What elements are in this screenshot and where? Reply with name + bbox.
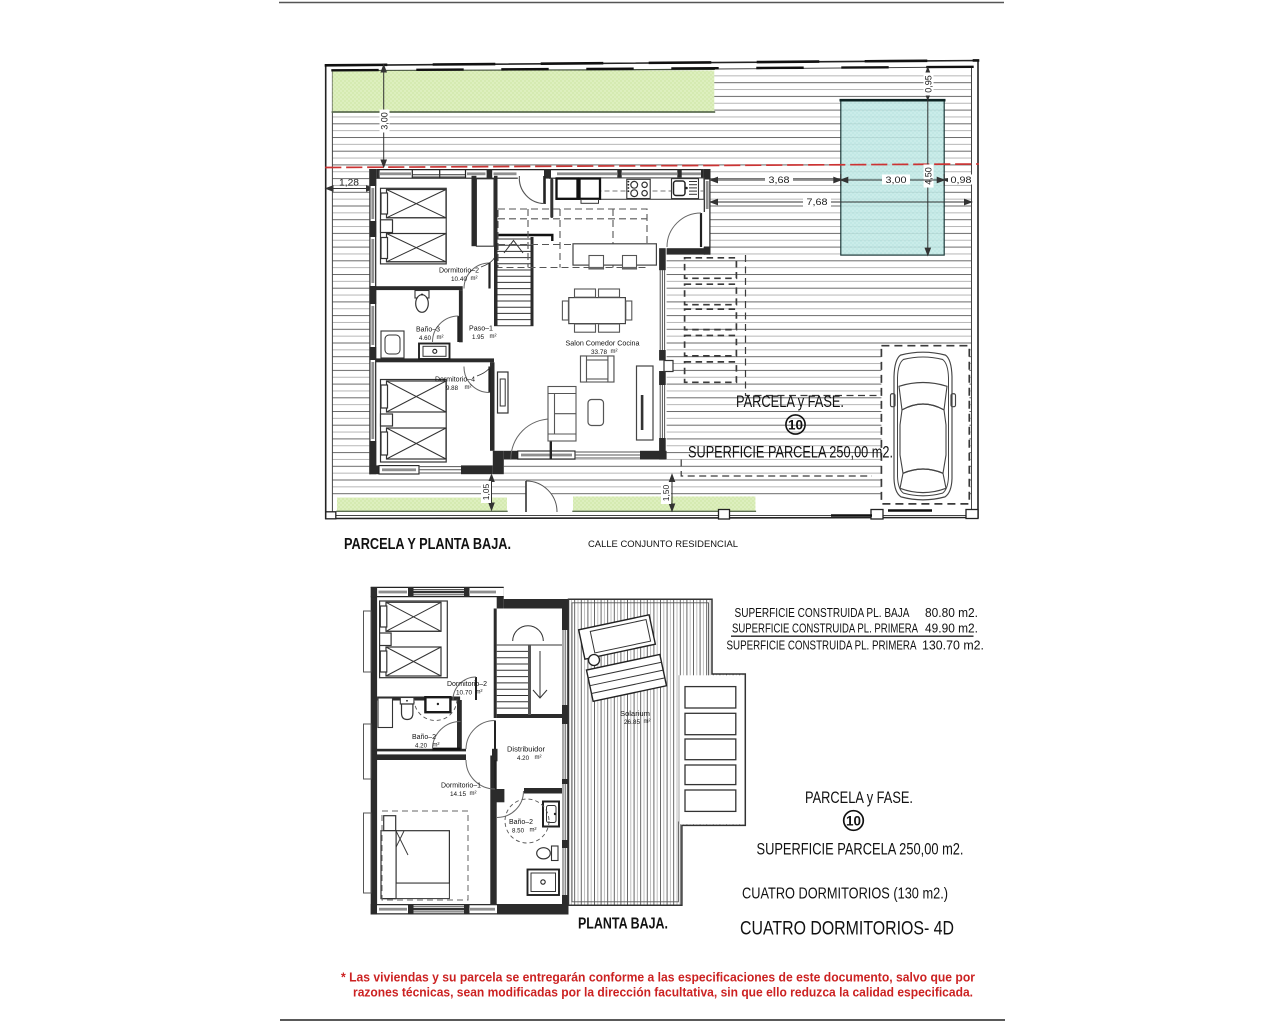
svg-text:Distribuidor: Distribuidor <box>507 747 546 754</box>
svg-text:3,00: 3,00 <box>380 112 390 130</box>
svg-text:m²: m² <box>433 743 440 749</box>
svg-text:9.88: 9.88 <box>446 386 459 392</box>
svg-text:m²: m² <box>490 334 497 340</box>
svg-text:8.50: 8.50 <box>512 829 525 835</box>
svg-text:10.40: 10.40 <box>451 277 468 283</box>
svg-text:PLANTA BAJA.: PLANTA BAJA. <box>578 916 668 933</box>
svg-text:4.20: 4.20 <box>517 756 530 762</box>
svg-text:14.15: 14.15 <box>450 792 467 798</box>
svg-text:10.70: 10.70 <box>456 691 473 697</box>
svg-text:SUPERFICIE CONSTRUIDA PL. PRIM: SUPERFICIE CONSTRUIDA PL. PRIMERA <box>727 639 918 653</box>
svg-text:26.85: 26.85 <box>624 720 641 726</box>
svg-text:49.90 m2.: 49.90 m2. <box>925 622 978 636</box>
svg-text:10: 10 <box>788 418 803 433</box>
svg-text:PARCELA y FASE.: PARCELA y FASE. <box>736 393 844 411</box>
svg-text:SUPERFICIE CONSTRUIDA PL. BAJA: SUPERFICIE CONSTRUIDA PL. BAJA <box>735 606 911 620</box>
svg-text:80.80 m2.: 80.80 m2. <box>925 606 978 620</box>
svg-text:m²: m² <box>476 690 483 696</box>
svg-text:1.95: 1.95 <box>472 335 485 341</box>
svg-text:Baño–3: Baño–3 <box>416 327 440 334</box>
svg-text:m²: m² <box>530 828 537 834</box>
svg-text:1,50: 1,50 <box>661 484 671 501</box>
svg-text:1,28: 1,28 <box>339 178 359 188</box>
svg-text:Salon Comedor Cocina: Salon Comedor Cocina <box>566 341 640 348</box>
svg-text:Baño–2: Baño–2 <box>509 819 533 826</box>
svg-text:m²: m² <box>470 791 477 797</box>
svg-text:m²: m² <box>611 349 618 355</box>
svg-text:Baño–2: Baño–2 <box>412 734 436 741</box>
svg-text:3,00: 3,00 <box>886 175 907 185</box>
svg-text:0,98: 0,98 <box>951 175 972 185</box>
svg-text:* Las viviendas y su parcela s: * Las viviendas y su parcela se entregar… <box>341 971 975 985</box>
svg-text:CUATRO DORMITORIOS (130 m2.): CUATRO DORMITORIOS (130 m2.) <box>742 886 948 903</box>
svg-text:Dormitorio–1: Dormitorio–1 <box>441 783 481 790</box>
svg-text:4,50: 4,50 <box>924 167 934 185</box>
svg-text:m²: m² <box>535 755 542 761</box>
svg-text:CALLE CONJUNTO RESIDENCIAL: CALLE CONJUNTO RESIDENCIAL <box>588 539 738 550</box>
svg-text:Dormitorio–2: Dormitorio–2 <box>439 268 479 275</box>
svg-text:PARCELA y FASE.: PARCELA y FASE. <box>805 789 913 807</box>
svg-text:SUPERFICIE PARCELA 250,00 m2.: SUPERFICIE PARCELA 250,00 m2. <box>688 444 893 462</box>
svg-text:m²: m² <box>471 276 478 282</box>
svg-text:m²: m² <box>437 335 444 341</box>
svg-text:7,68: 7,68 <box>807 197 828 207</box>
svg-text:1,05: 1,05 <box>481 483 491 500</box>
svg-text:0,95: 0,95 <box>924 75 934 93</box>
svg-text:m²: m² <box>644 719 651 725</box>
svg-text:Solarium: Solarium <box>620 711 650 718</box>
svg-text:m²: m² <box>465 385 472 391</box>
svg-text:SUPERFICIE CONSTRUIDA PL. PRIM: SUPERFICIE CONSTRUIDA PL. PRIMERA <box>732 622 918 636</box>
svg-text:4.60: 4.60 <box>419 336 432 342</box>
svg-text:Dormitorio–2: Dormitorio–2 <box>447 681 487 688</box>
svg-text:Dormitorio–4: Dormitorio–4 <box>435 377 475 384</box>
svg-text:razones técnicas, sean modific: razones técnicas, sean modificadas por l… <box>353 986 973 1000</box>
svg-text:33.78: 33.78 <box>591 350 608 356</box>
svg-text:130.70 m2.: 130.70 m2. <box>922 639 984 653</box>
svg-text:Paso–1: Paso–1 <box>469 326 493 333</box>
svg-text:4.20: 4.20 <box>415 744 428 750</box>
svg-text:3,68: 3,68 <box>769 175 790 185</box>
svg-text:10: 10 <box>846 814 861 829</box>
svg-text:CUATRO DORMITORIOS- 4D: CUATRO DORMITORIOS- 4D <box>740 918 954 940</box>
svg-text:PARCELA Y PLANTA BAJA.: PARCELA Y PLANTA BAJA. <box>344 536 511 553</box>
svg-text:SUPERFICIE PARCELA 250,00 m2.: SUPERFICIE PARCELA 250,00 m2. <box>757 841 964 859</box>
